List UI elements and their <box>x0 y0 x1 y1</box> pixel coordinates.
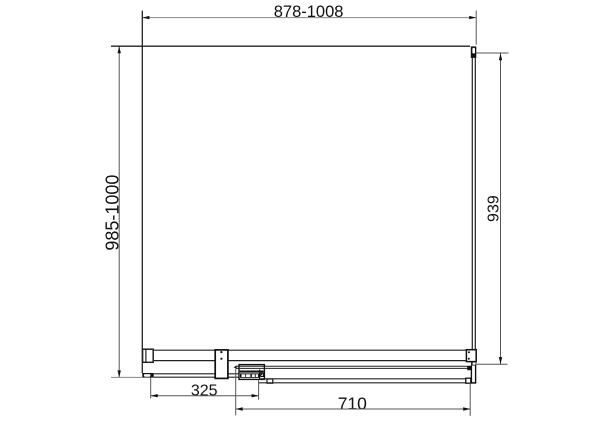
svg-text:710: 710 <box>338 393 367 413</box>
svg-text:325: 325 <box>191 382 218 399</box>
svg-text:878-1008: 878-1008 <box>274 3 344 21</box>
